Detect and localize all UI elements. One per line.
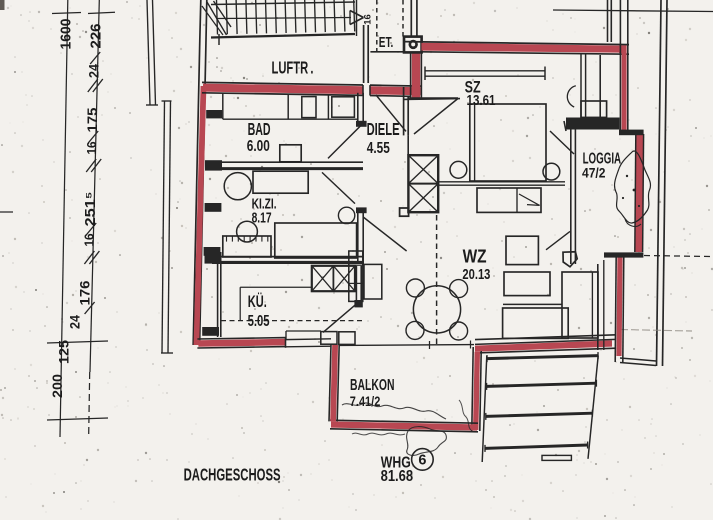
svg-text:24: 24 <box>87 64 102 78</box>
svg-text:200: 200 <box>49 374 65 398</box>
svg-text:WZ: WZ <box>463 247 487 267</box>
svg-text:125: 125 <box>56 340 72 364</box>
svg-text:ET.: ET. <box>379 34 394 51</box>
svg-text:24: 24 <box>68 315 83 329</box>
svg-text:47/2: 47/2 <box>582 165 606 180</box>
svg-text:4.55: 4.55 <box>367 140 390 157</box>
svg-text:16: 16 <box>363 14 374 25</box>
svg-text:1600: 1600 <box>59 19 75 50</box>
svg-text:16: 16 <box>84 142 99 155</box>
svg-text:KÜ.: KÜ. <box>248 292 267 311</box>
svg-text:176: 176 <box>77 280 93 305</box>
svg-text:20.13: 20.13 <box>462 266 490 283</box>
svg-text:6: 6 <box>418 453 426 469</box>
svg-text:DACHGESCHOSS: DACHGESCHOSS <box>184 465 281 485</box>
svg-text:226: 226 <box>89 24 105 49</box>
svg-text:LUFTR .: LUFTR . <box>272 58 314 78</box>
svg-text:8.17: 8.17 <box>252 210 272 227</box>
svg-text:7.41/2: 7.41/2 <box>350 394 381 409</box>
svg-text:BAD: BAD <box>248 119 271 139</box>
svg-text:175: 175 <box>84 107 100 132</box>
svg-text:251⁵: 251⁵ <box>83 192 99 227</box>
svg-text:13.61: 13.61 <box>467 92 496 109</box>
svg-text:81.68: 81.68 <box>381 468 414 485</box>
svg-text:5.05: 5.05 <box>248 313 270 330</box>
svg-text:16: 16 <box>82 234 97 247</box>
svg-text:6.00: 6.00 <box>247 138 270 155</box>
svg-text:BALKON: BALKON <box>350 377 395 394</box>
svg-text:DIELE: DIELE <box>367 119 400 139</box>
